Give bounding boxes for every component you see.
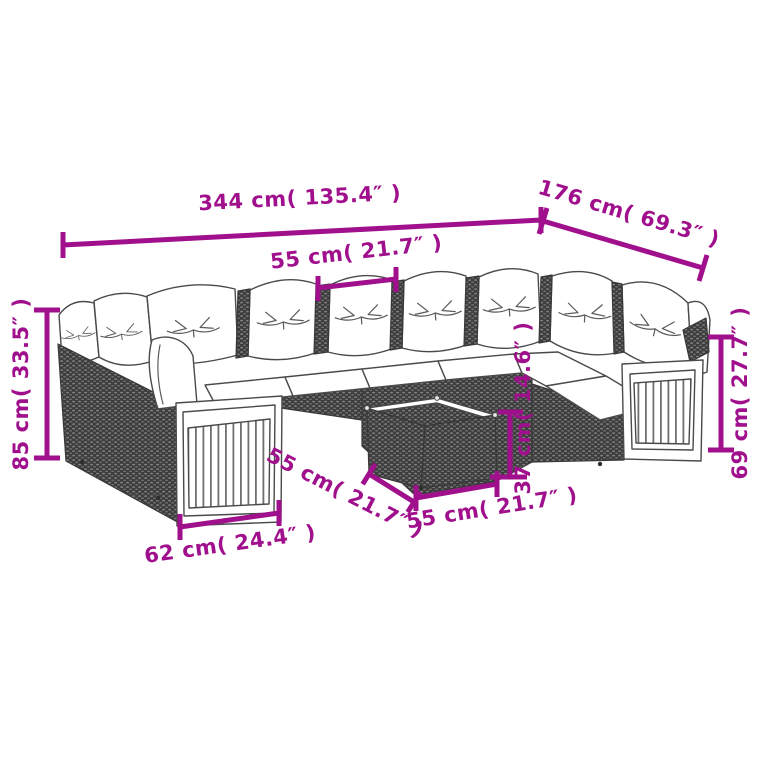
dim-total-height: 85 cm( 33.5″ ) [9,298,60,471]
dim-table-height-label: 37 cm( 14.6″ ) [511,322,535,495]
dim-total-height-label: 85 cm( 33.5″ ) [9,298,33,471]
dim-end-panel-width-label: 62 cm( 24.4″ ) [143,520,318,568]
right-acacia-panel [622,360,703,461]
dim-overall-depth-label: 176 cm( 69.3″ ) [535,175,722,251]
back-cushion [622,282,692,369]
table-right-face [421,415,497,488]
dim-seat-width-label: 55 cm( 21.7″ ) [269,230,443,273]
sofa-illustration [58,269,710,526]
diagram-canvas: 344 cm( 135.4″ ) 176 cm( 69.3″ ) 55 cm( … [0,0,767,767]
dim-arm-height-label: 69 cm( 27.7″ ) [728,307,752,480]
product-dimension-diagram: 344 cm( 135.4″ ) 176 cm( 69.3″ ) 55 cm( … [0,0,767,767]
dim-overall-width-label: 344 cm( 135.4″ ) [198,181,402,216]
dim-overall-depth: 176 cm( 69.3″ ) [535,175,722,281]
back-cushion [248,280,318,360]
dim-arm-height: 69 cm( 27.7″ ) [708,307,752,480]
back-cushion [94,293,153,365]
coffee-table-illustration [365,396,498,491]
back-cushion [402,272,469,352]
